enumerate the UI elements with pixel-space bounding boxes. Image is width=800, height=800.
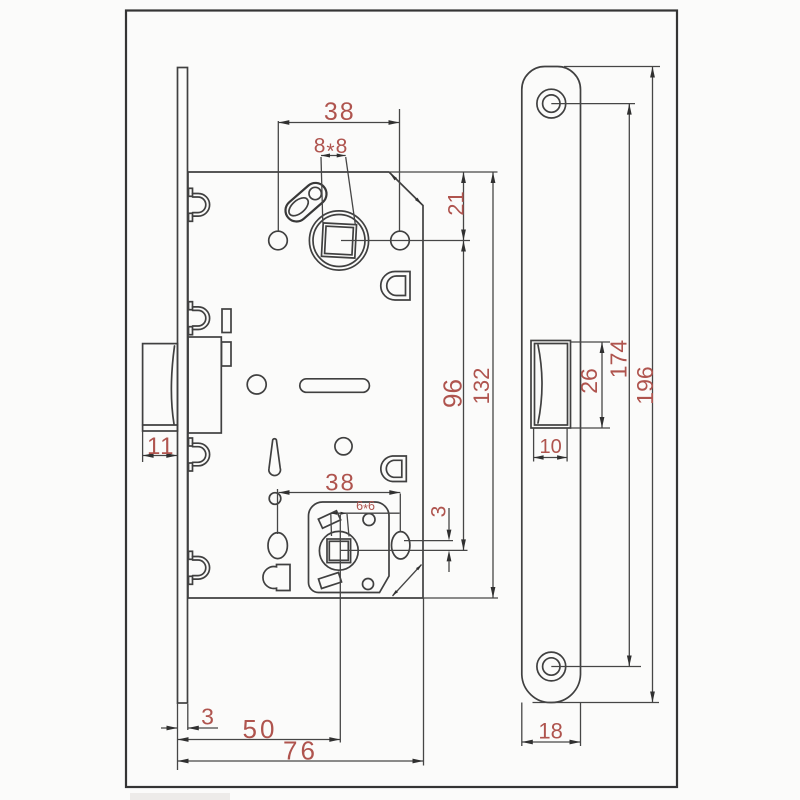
svg-text:10: 10 — [539, 436, 561, 458]
svg-text:196: 196 — [632, 366, 658, 404]
svg-text:26: 26 — [576, 368, 602, 394]
svg-text:50: 50 — [243, 714, 278, 744]
svg-text:3: 3 — [428, 506, 451, 518]
svg-text:11: 11 — [147, 433, 175, 460]
svg-text:96: 96 — [438, 379, 468, 408]
svg-text:174: 174 — [606, 340, 632, 379]
svg-text:132: 132 — [469, 368, 494, 405]
svg-text:3: 3 — [201, 704, 214, 730]
svg-text:76: 76 — [283, 736, 318, 766]
svg-text:38: 38 — [324, 98, 356, 126]
svg-text:21: 21 — [443, 191, 468, 215]
svg-text:38: 38 — [325, 470, 356, 497]
svg-text:18: 18 — [538, 719, 562, 744]
